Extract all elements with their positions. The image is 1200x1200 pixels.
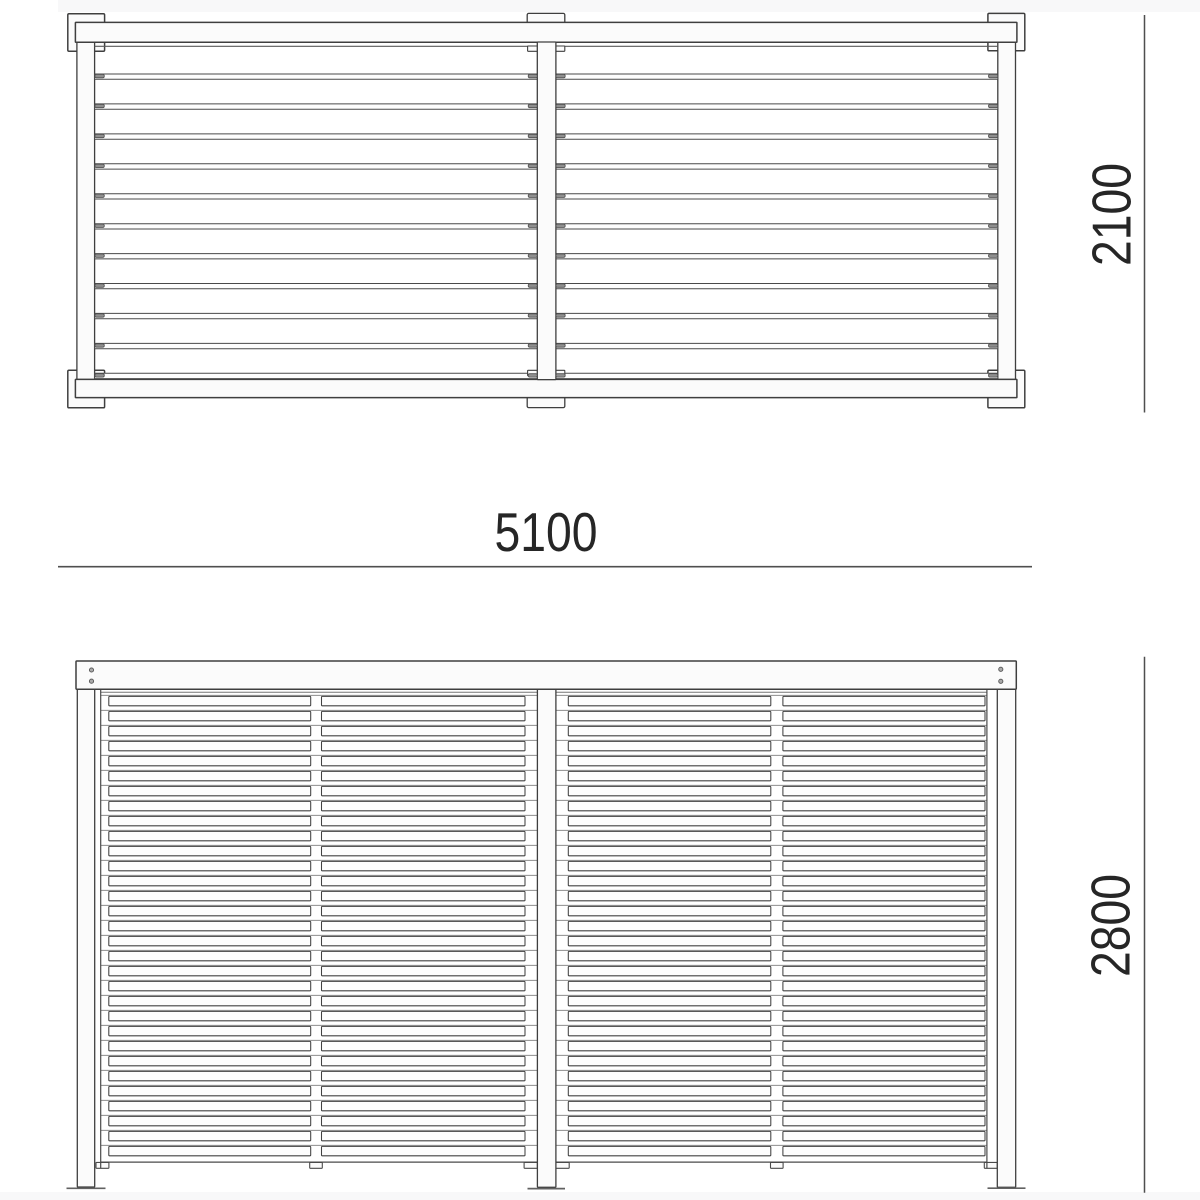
svg-text:5100: 5100 <box>494 501 597 562</box>
svg-text:2100: 2100 <box>1081 163 1142 266</box>
svg-text:2800: 2800 <box>1080 874 1141 977</box>
